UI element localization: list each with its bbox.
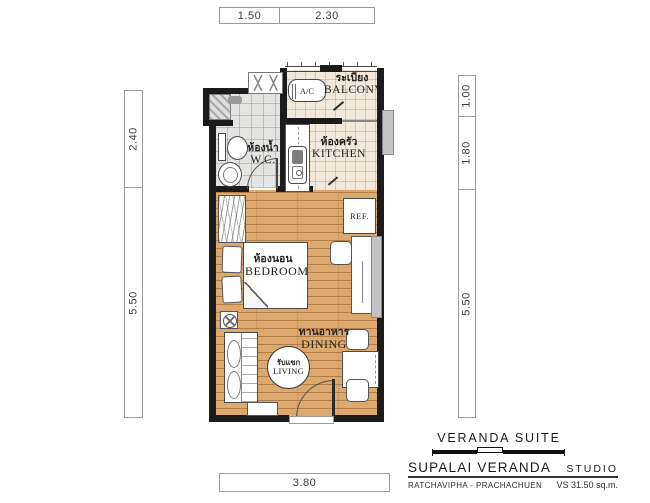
sink-faucet (296, 170, 302, 176)
fan-blades (223, 314, 237, 328)
room-label-dining: ทานอาหาร DINING (294, 326, 354, 352)
scale-bar-tick (432, 449, 433, 456)
sliding-door-line (342, 120, 377, 122)
ref-label: REF. (350, 211, 369, 221)
project-location: RATCHAVIPHA - PRACHACHUEN (408, 481, 542, 490)
basin-icon (218, 162, 242, 187)
entry-door-leaf (332, 379, 335, 418)
title-divider (408, 476, 618, 478)
sofa-cushion (227, 371, 241, 399)
unit-type: STUDIO (566, 463, 618, 475)
condenser-ledge (382, 110, 394, 155)
dimension-value: 1.80 (458, 117, 476, 190)
dining-chair-icon (346, 379, 369, 402)
room-label-living: รับแขก LIVING (267, 346, 310, 389)
scale-bar-tick (564, 449, 565, 456)
wall-bottom (209, 415, 289, 422)
dimension-bar-top: 1.50 2.30 (219, 7, 375, 24)
cabinet-handle-line (362, 261, 363, 303)
scale-bar-segment (433, 450, 477, 454)
dimension-value: 1.00 (458, 75, 476, 117)
dimension-value: 1.50 (219, 7, 280, 24)
unit-area: VS 31.50 sq.m. (556, 480, 618, 490)
dimension-value: 5.50 (458, 190, 476, 418)
entry-threshold (289, 416, 334, 424)
title-block-row: SUPALAI VERANDA STUDIO (408, 460, 618, 475)
wardrobe-icon (218, 195, 246, 243)
side-table-icon (247, 402, 278, 416)
room-label-wc: ห้องน้ำ W.C. (240, 142, 286, 167)
wall-left (209, 120, 216, 422)
table-dash (375, 355, 376, 384)
blanket-fold (244, 282, 268, 308)
wall-bottom (333, 415, 384, 422)
louver-pane (267, 75, 281, 91)
room-label-bedroom: ห้องนอน BEDROOM (245, 253, 301, 279)
desk-chair-icon (330, 241, 352, 265)
dimension-bar-left: 2.40 5.50 (124, 90, 143, 418)
basin-bowl (223, 167, 238, 183)
sofa-back (241, 333, 257, 402)
refrigerator-icon: REF. (343, 198, 376, 234)
room-label-balcony: ระเบียง BALCONY (324, 72, 380, 97)
dimension-value: 2.40 (124, 90, 143, 188)
ac-unit-icon: A/C (288, 79, 326, 102)
sofa-icon (224, 332, 258, 403)
railing-panel (320, 65, 342, 72)
toilet-tank-icon (218, 133, 226, 161)
scale-bar-segment (503, 450, 565, 454)
louver-window-icon (248, 72, 283, 94)
louver-pane (251, 75, 265, 91)
shower-icon (228, 96, 242, 104)
floor-plan-canvas: 1.50 2.30 2.40 5.50 1.00 1.80 5.50 3.80 (0, 0, 650, 503)
ac-label: A/C (300, 86, 314, 96)
sink-basin (292, 150, 303, 164)
sofa-cushion (227, 340, 241, 368)
scale-bar-segment (477, 447, 503, 453)
desk-cabinet-icon (351, 236, 373, 314)
pillow-icon (222, 246, 243, 274)
dimension-bar-bottom: 3.80 (219, 473, 390, 492)
suite-name: VERANDA SUITE (433, 431, 565, 445)
dimension-bar-right: 1.00 1.80 5.50 (458, 75, 476, 418)
fan-icon (220, 311, 238, 329)
dimension-value: 3.80 (219, 473, 390, 492)
ac-slats (292, 84, 298, 99)
tall-cabinet-icon (371, 236, 382, 318)
dimension-value: 2.30 (280, 7, 375, 24)
kitchen-sink-icon (288, 146, 307, 184)
room-label-kitchen: ห้องครัว KITCHEN (310, 136, 368, 161)
title-block-row: RATCHAVIPHA - PRACHACHUEN VS 31.50 sq.m. (408, 480, 618, 490)
project-name: SUPALAI VERANDA (408, 460, 551, 475)
dimension-value: 5.50 (124, 188, 143, 418)
pillow-icon (221, 275, 242, 303)
